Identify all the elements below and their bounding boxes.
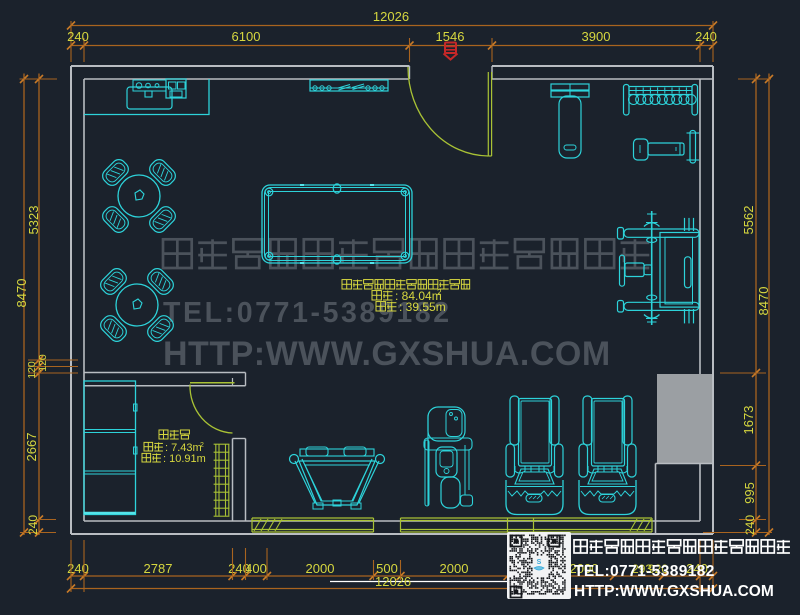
svg-text:2: 2: [200, 442, 204, 449]
svg-text:S: S: [537, 559, 542, 566]
svg-text:12026: 12026: [373, 9, 409, 24]
svg-text:2: 2: [437, 288, 442, 297]
svg-text:HTTP:WWW.GXSHUA.COM: HTTP:WWW.GXSHUA.COM: [574, 583, 774, 600]
svg-text:2667: 2667: [24, 433, 39, 462]
svg-text:6100: 6100: [232, 29, 261, 44]
svg-text:240: 240: [695, 29, 717, 44]
svg-text:2000: 2000: [440, 561, 469, 576]
svg-text:1673: 1673: [741, 406, 756, 435]
svg-text:5562: 5562: [741, 206, 756, 235]
svg-text:12026: 12026: [375, 574, 411, 589]
svg-text:995: 995: [742, 482, 757, 504]
svg-text:3900: 3900: [582, 29, 611, 44]
svg-text:2787: 2787: [144, 561, 173, 576]
svg-text:240: 240: [743, 515, 757, 535]
svg-text:HTTP:WWW.GXSHUA.COM: HTTP:WWW.GXSHUA.COM: [163, 335, 611, 373]
svg-text:400: 400: [245, 561, 267, 576]
svg-text:5323: 5323: [26, 206, 41, 235]
svg-text:8470: 8470: [756, 287, 771, 316]
svg-text:: 39.55m: : 39.55m: [399, 300, 446, 314]
svg-text:240: 240: [67, 561, 89, 576]
svg-text:240: 240: [26, 515, 40, 535]
svg-text:2000: 2000: [306, 561, 335, 576]
svg-text:8470: 8470: [14, 279, 29, 308]
svg-text:TEL:0771-5389182: TEL:0771-5389182: [574, 563, 715, 580]
svg-text:240: 240: [67, 29, 89, 44]
svg-text:120: 120: [37, 354, 49, 372]
svg-text:: 10.91m: : 10.91m: [163, 453, 206, 465]
